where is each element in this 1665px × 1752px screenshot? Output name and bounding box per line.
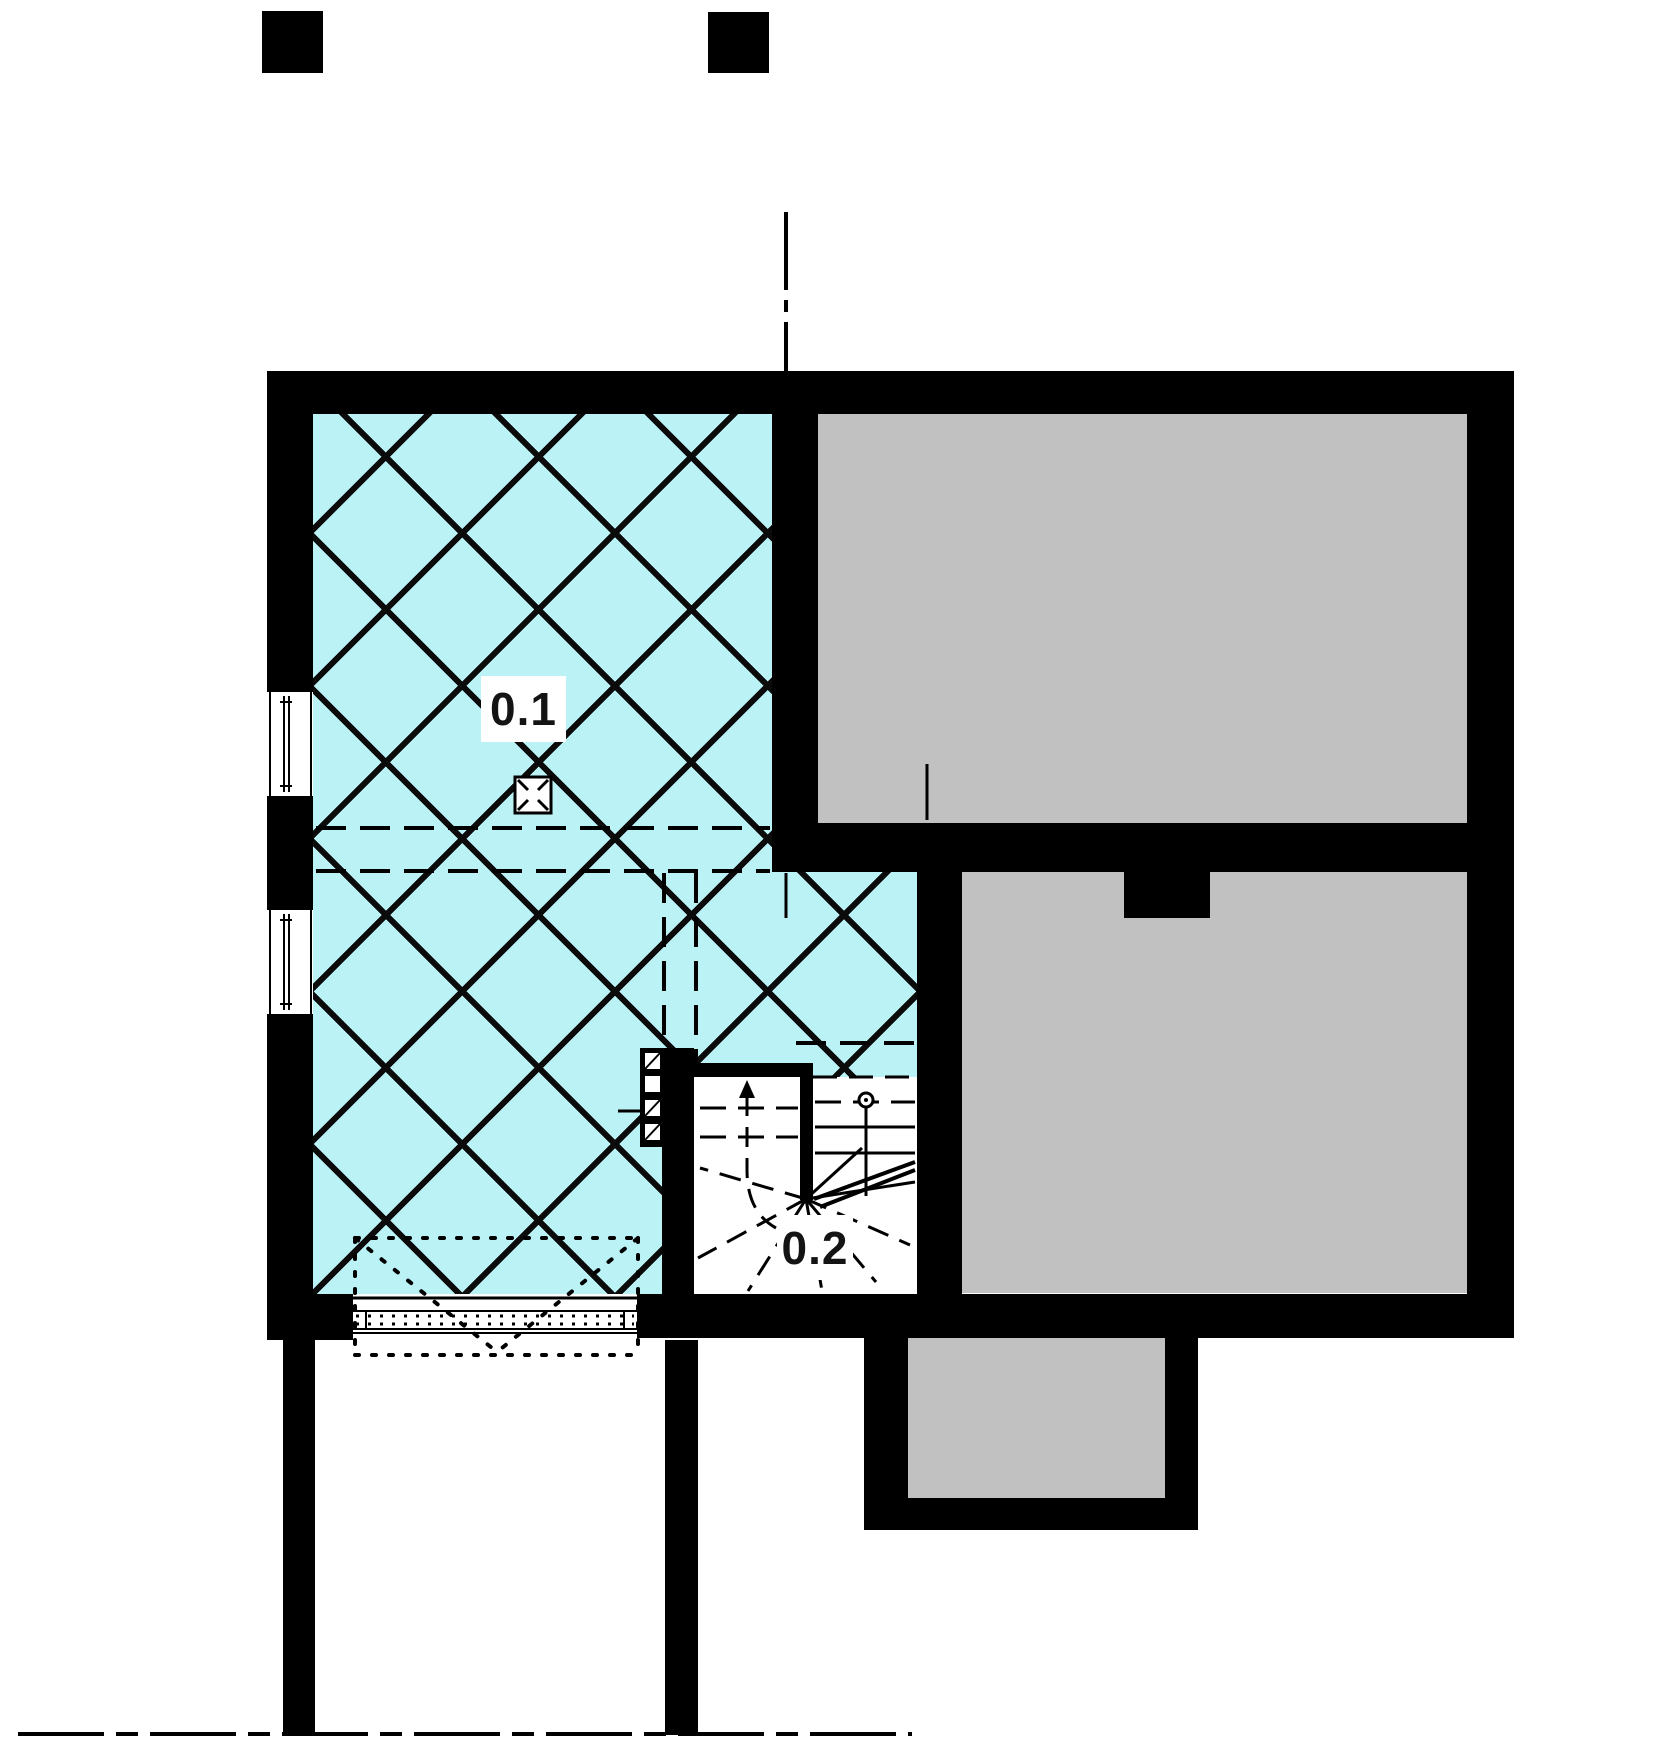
handrail-post-center	[864, 1098, 868, 1102]
stair-wall-masonry-strip	[618, 1048, 665, 1147]
stair-up-arrow	[739, 1080, 776, 1228]
room-number: 0.2	[782, 1221, 849, 1275]
room-label-0-2: 0.2	[777, 1215, 853, 1280]
floor-plan: 0.1 0.2	[0, 0, 1665, 1752]
floor-drain-icon	[515, 777, 551, 813]
window-left-lower	[267, 908, 313, 1016]
hidden-edges	[316, 828, 915, 1063]
basement-window-opening	[353, 1294, 637, 1340]
window-left-upper	[267, 690, 313, 798]
room-number: 0.1	[490, 682, 557, 736]
plan-linework	[0, 0, 1665, 1752]
room-label-0-1: 0.1	[481, 676, 566, 742]
